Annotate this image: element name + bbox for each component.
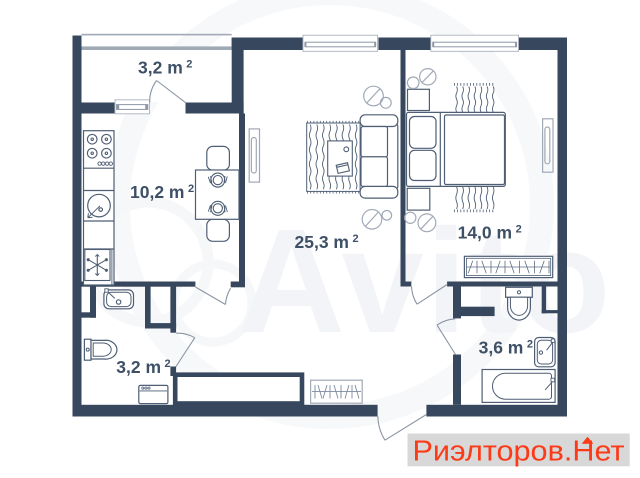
svg-text:3,2 m2: 3,2 m2 — [116, 357, 170, 377]
svg-text:10,2 m2: 10,2 m2 — [130, 182, 194, 202]
svg-text:Риэлторов.Нет: Риэлторов.Нет — [413, 436, 625, 468]
svg-text:14,0 m2: 14,0 m2 — [458, 223, 522, 243]
